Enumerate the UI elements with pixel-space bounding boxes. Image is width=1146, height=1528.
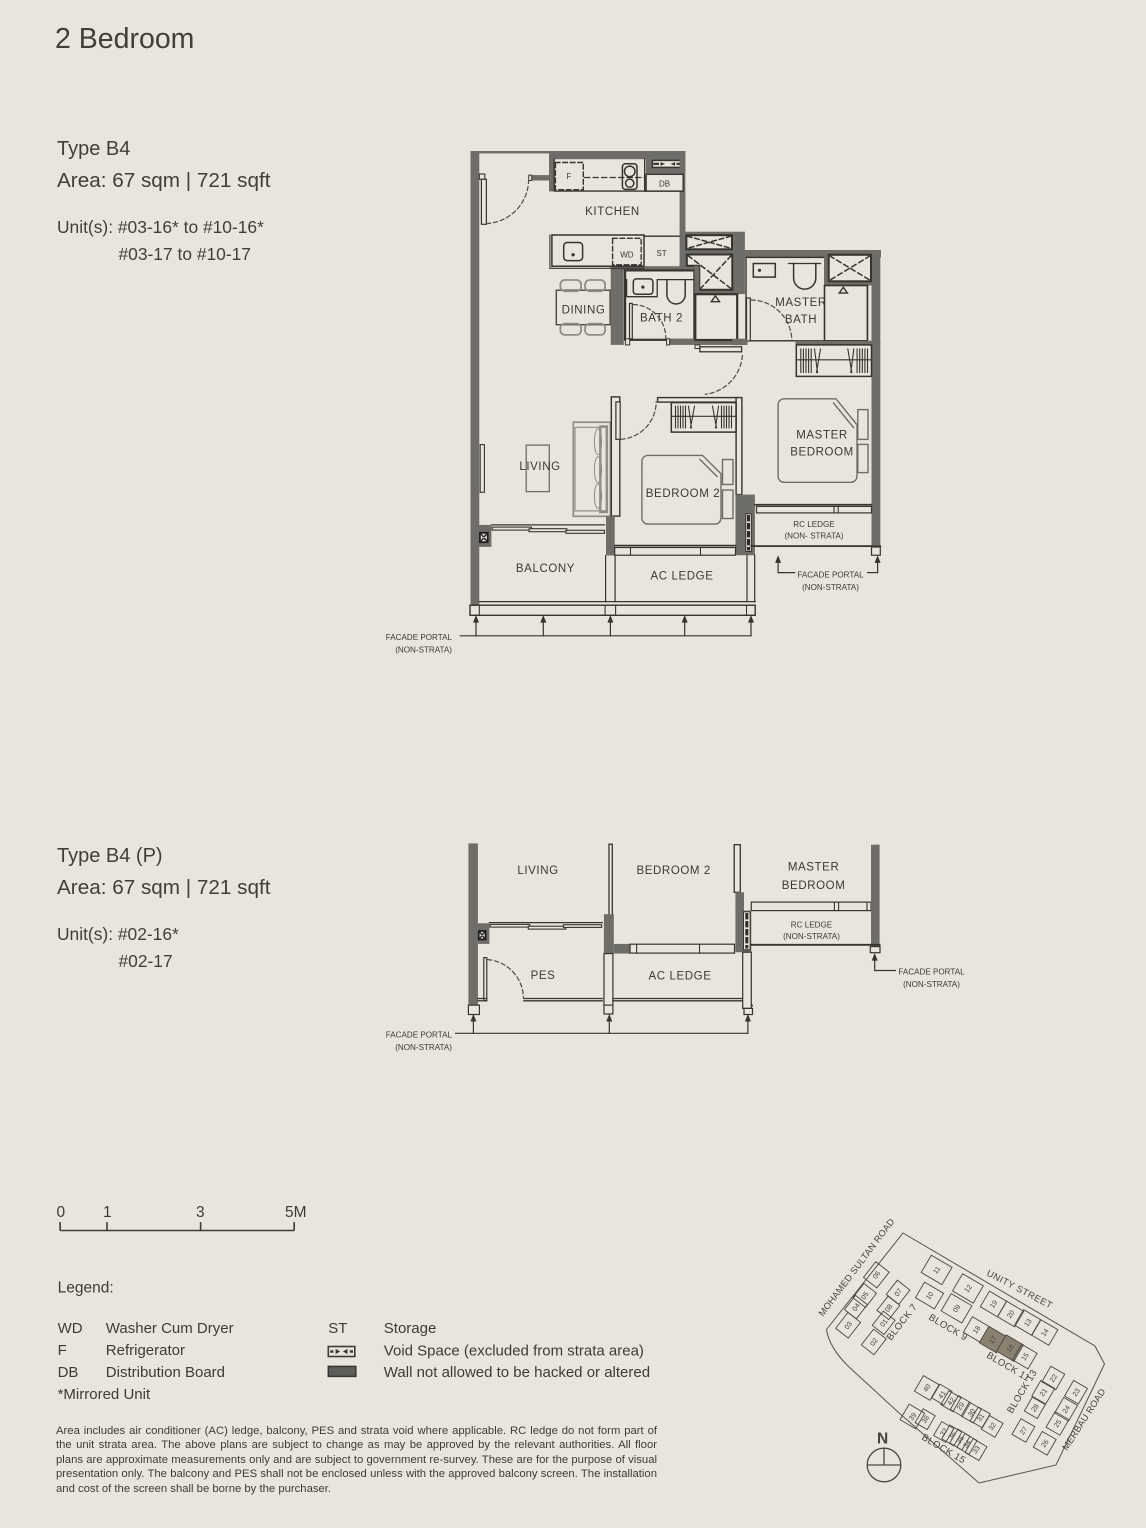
svg-text:03: 03 xyxy=(844,1321,854,1331)
svg-text:MERBAU ROAD: MERBAU ROAD xyxy=(1060,1387,1107,1452)
svg-text:23: 23 xyxy=(1072,1387,1082,1397)
svg-text:12: 12 xyxy=(964,1284,974,1294)
svg-text:RC LEDGE: RC LEDGE xyxy=(791,921,833,930)
svg-text:Refrigerator: Refrigerator xyxy=(106,1342,185,1359)
svg-text:(NON-STRATA): (NON-STRATA) xyxy=(395,1043,452,1052)
svg-text:ST: ST xyxy=(656,249,666,258)
svg-text:BEDROOM 2: BEDROOM 2 xyxy=(636,865,710,877)
svg-text:08: 08 xyxy=(884,1303,894,1313)
svg-text:(NON- STRATA): (NON- STRATA) xyxy=(784,532,843,541)
svg-text:06: 06 xyxy=(872,1270,882,1280)
svg-text:19: 19 xyxy=(989,1299,999,1309)
svg-text:MASTER: MASTER xyxy=(796,430,848,442)
svg-text:(NON-STRATA): (NON-STRATA) xyxy=(783,932,840,941)
svg-text:10: 10 xyxy=(925,1291,935,1301)
svg-text:38: 38 xyxy=(921,1414,931,1424)
svg-text:N: N xyxy=(877,1431,888,1448)
svg-text:11: 11 xyxy=(932,1265,942,1275)
svg-text:2 Bedroom: 2 Bedroom xyxy=(55,23,194,55)
svg-text:22: 22 xyxy=(1049,1373,1059,1383)
svg-text:Legend:: Legend: xyxy=(58,1280,114,1297)
svg-text:Area: 67 sqm | 721 sqft: Area: 67 sqm | 721 sqft xyxy=(57,169,271,192)
svg-text:WD: WD xyxy=(620,251,634,260)
svg-text:BEDROOM: BEDROOM xyxy=(790,447,854,459)
svg-text:20: 20 xyxy=(1006,1309,1016,1319)
svg-text:F: F xyxy=(567,172,572,181)
svg-text:07: 07 xyxy=(894,1287,904,1297)
svg-text:BEDROOM: BEDROOM xyxy=(782,880,846,892)
svg-text:25: 25 xyxy=(1053,1419,1063,1429)
svg-text:Unit(s): #03-16* to #10-16*: Unit(s): #03-16* to #10-16* xyxy=(57,217,264,237)
svg-text:BLOCK 9: BLOCK 9 xyxy=(926,1312,969,1343)
svg-text:MASTER: MASTER xyxy=(775,297,827,309)
svg-text:15: 15 xyxy=(1021,1352,1031,1362)
svg-text:05: 05 xyxy=(860,1291,870,1301)
svg-text:Void Space (excluded from stra: Void Space (excluded from strata area) xyxy=(384,1343,644,1360)
svg-text:RC LEDGE: RC LEDGE xyxy=(793,520,835,529)
svg-text:BALCONY: BALCONY xyxy=(516,563,575,575)
svg-text:Type B4 (P): Type B4 (P) xyxy=(57,845,163,867)
svg-text:LIVING: LIVING xyxy=(517,865,558,877)
svg-text:40: 40 xyxy=(922,1383,932,1393)
svg-text:(NON-STRATA): (NON-STRATA) xyxy=(802,583,859,592)
svg-text:DB: DB xyxy=(659,180,670,189)
svg-text:AC LEDGE: AC LEDGE xyxy=(649,971,712,983)
svg-text:FACADE PORTAL: FACADE PORTAL xyxy=(386,1031,453,1040)
svg-text:09: 09 xyxy=(952,1304,962,1314)
svg-text:39: 39 xyxy=(908,1412,918,1422)
svg-text:5M: 5M xyxy=(285,1204,307,1221)
svg-text:AC LEDGE: AC LEDGE xyxy=(651,571,714,583)
svg-text:ST: ST xyxy=(328,1320,347,1337)
svg-text:BEDROOM 2: BEDROOM 2 xyxy=(646,488,720,500)
svg-text:27: 27 xyxy=(1019,1426,1029,1436)
svg-text:(NON-STRATA): (NON-STRATA) xyxy=(903,980,960,989)
svg-text:LIVING: LIVING xyxy=(519,461,560,473)
svg-text:(NON-STRATA): (NON-STRATA) xyxy=(395,646,452,655)
svg-text:Type B4: Type B4 xyxy=(57,138,130,160)
svg-text:31: 31 xyxy=(976,1413,986,1423)
svg-text:#03-17 to #10-17: #03-17 to #10-17 xyxy=(119,244,251,264)
svg-text:13: 13 xyxy=(1023,1318,1033,1328)
svg-text:32: 32 xyxy=(988,1422,998,1432)
svg-text:Unit(s): #02-16*: Unit(s): #02-16* xyxy=(57,924,179,944)
svg-text:14: 14 xyxy=(1040,1328,1050,1338)
svg-text:Wall not allowed to be hacked: Wall not allowed to be hacked or altered xyxy=(384,1364,650,1381)
svg-text:DINING: DINING xyxy=(562,305,606,317)
svg-text:FACADE PORTAL: FACADE PORTAL xyxy=(386,633,453,642)
svg-text:DB: DB xyxy=(58,1364,79,1381)
svg-text:1: 1 xyxy=(103,1204,112,1221)
svg-text:28: 28 xyxy=(1031,1403,1041,1413)
svg-text:*Mirrored Unit: *Mirrored Unit xyxy=(58,1386,151,1403)
svg-text:Storage: Storage xyxy=(384,1320,437,1337)
svg-text:KITCHEN: KITCHEN xyxy=(585,206,640,218)
svg-text:0: 0 xyxy=(57,1204,66,1221)
svg-text:Washer Cum Dryer: Washer Cum Dryer xyxy=(106,1320,234,1337)
svg-text:02: 02 xyxy=(870,1337,880,1347)
svg-text:24: 24 xyxy=(1062,1404,1072,1414)
svg-text:PES: PES xyxy=(531,970,556,982)
svg-text:Distribution Board: Distribution Board xyxy=(106,1364,225,1381)
svg-text:3: 3 xyxy=(196,1204,205,1221)
svg-text:#02-17: #02-17 xyxy=(119,951,173,971)
svg-text:Area: 67 sqm | 721 sqft: Area: 67 sqm | 721 sqft xyxy=(57,876,271,899)
svg-text:FACADE PORTAL: FACADE PORTAL xyxy=(898,968,965,977)
svg-text:BATH: BATH xyxy=(785,314,817,326)
svg-text:21: 21 xyxy=(1039,1387,1049,1397)
svg-text:MASTER: MASTER xyxy=(788,862,840,874)
svg-text:FACADE PORTAL: FACADE PORTAL xyxy=(797,571,864,580)
svg-text:F: F xyxy=(58,1342,67,1359)
svg-text:18: 18 xyxy=(972,1325,982,1335)
svg-text:WD: WD xyxy=(58,1320,83,1337)
svg-text:26: 26 xyxy=(1040,1439,1050,1449)
